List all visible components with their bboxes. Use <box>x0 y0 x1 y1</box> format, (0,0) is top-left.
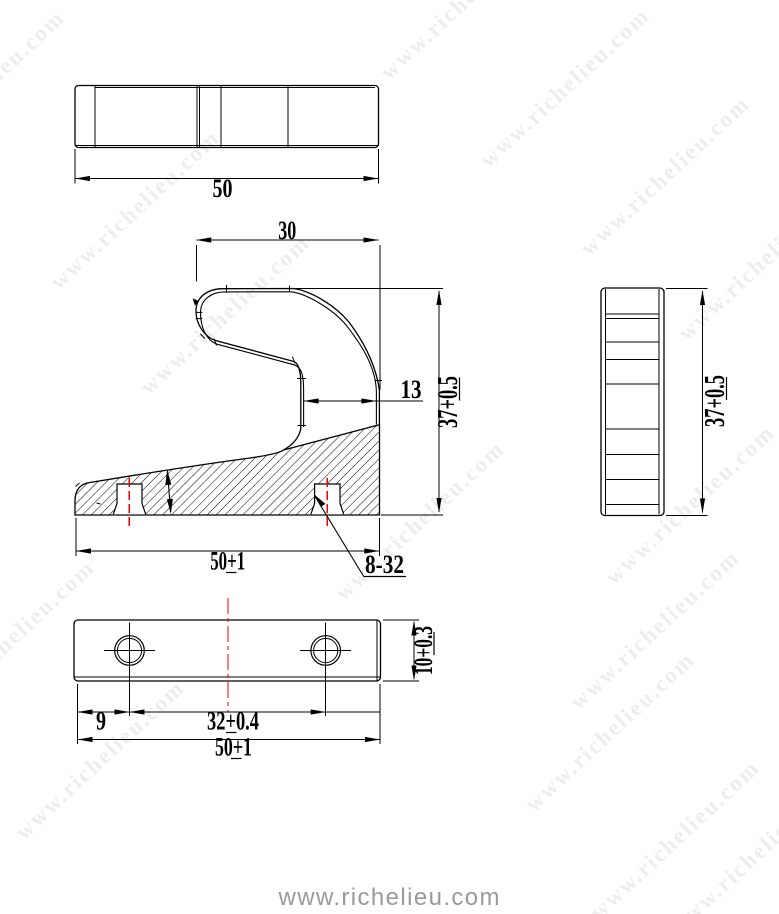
svg-text:www.richelieu.com: www.richelieu.com <box>278 884 500 911</box>
svg-text:13: 13 <box>401 375 422 404</box>
svg-text:www.richelieu.com: www.richelieu.com <box>45 125 224 295</box>
svg-text:50+1: 50+1 <box>210 547 245 576</box>
svg-text:50+1: 50+1 <box>215 733 252 762</box>
svg-text:32+0.4: 32+0.4 <box>207 707 259 736</box>
svg-text:www.richelieu.com: www.richelieu.com <box>0 555 100 725</box>
svg-text:www.richelieu.com: www.richelieu.com <box>585 755 764 914</box>
svg-text:8-32: 8-32 <box>365 550 404 579</box>
svg-text:www.richelieu.com: www.richelieu.com <box>0 5 70 175</box>
svg-text:www.richelieu.com: www.richelieu.com <box>375 0 554 84</box>
svg-text:www.richelieu.com: www.richelieu.com <box>575 91 754 261</box>
svg-text:www.richelieu.com: www.richelieu.com <box>475 3 654 173</box>
svg-text:50: 50 <box>213 174 233 203</box>
svg-text:30: 30 <box>278 216 296 245</box>
svg-text:9: 9 <box>96 707 106 736</box>
svg-text:www.richelieu.com: www.richelieu.com <box>10 675 189 845</box>
svg-text:www.richelieu.com: www.richelieu.com <box>673 176 779 346</box>
svg-text:www.richelieu.com: www.richelieu.com <box>135 230 314 400</box>
